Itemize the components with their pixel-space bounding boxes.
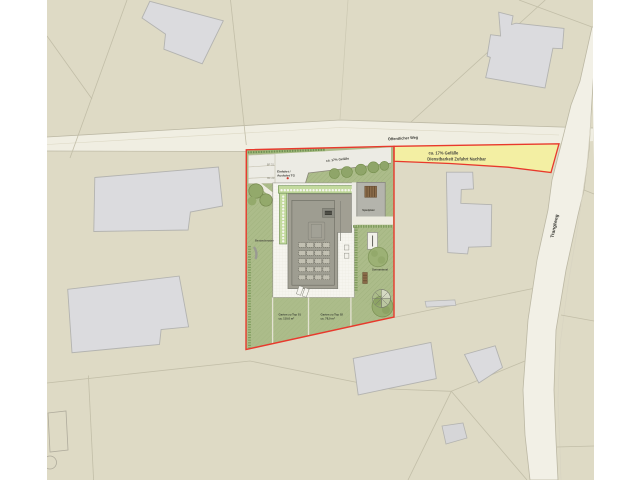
- svg-text:Ausfahrt TG: Ausfahrt TG: [277, 174, 295, 178]
- svg-text:ca. 110,0 m²: ca. 110,0 m²: [279, 317, 295, 321]
- svg-text:ca. 17% Gefälle: ca. 17% Gefälle: [429, 150, 460, 155]
- svg-text:BF 20: BF 20: [267, 176, 275, 180]
- svg-text:Bestandsmauer: Bestandsmauer: [255, 239, 274, 242]
- svg-text:ca. 78,0 m²: ca. 78,0 m²: [321, 317, 335, 321]
- svg-text:Spielplatz: Spielplatz: [362, 208, 375, 212]
- svg-text:Sonneninsel: Sonneninsel: [372, 268, 388, 272]
- svg-text:BF 31: BF 31: [267, 162, 275, 166]
- svg-text:Dienstbarkeit Zufahrt Nachbar: Dienstbarkeit Zufahrt Nachbar: [427, 156, 486, 161]
